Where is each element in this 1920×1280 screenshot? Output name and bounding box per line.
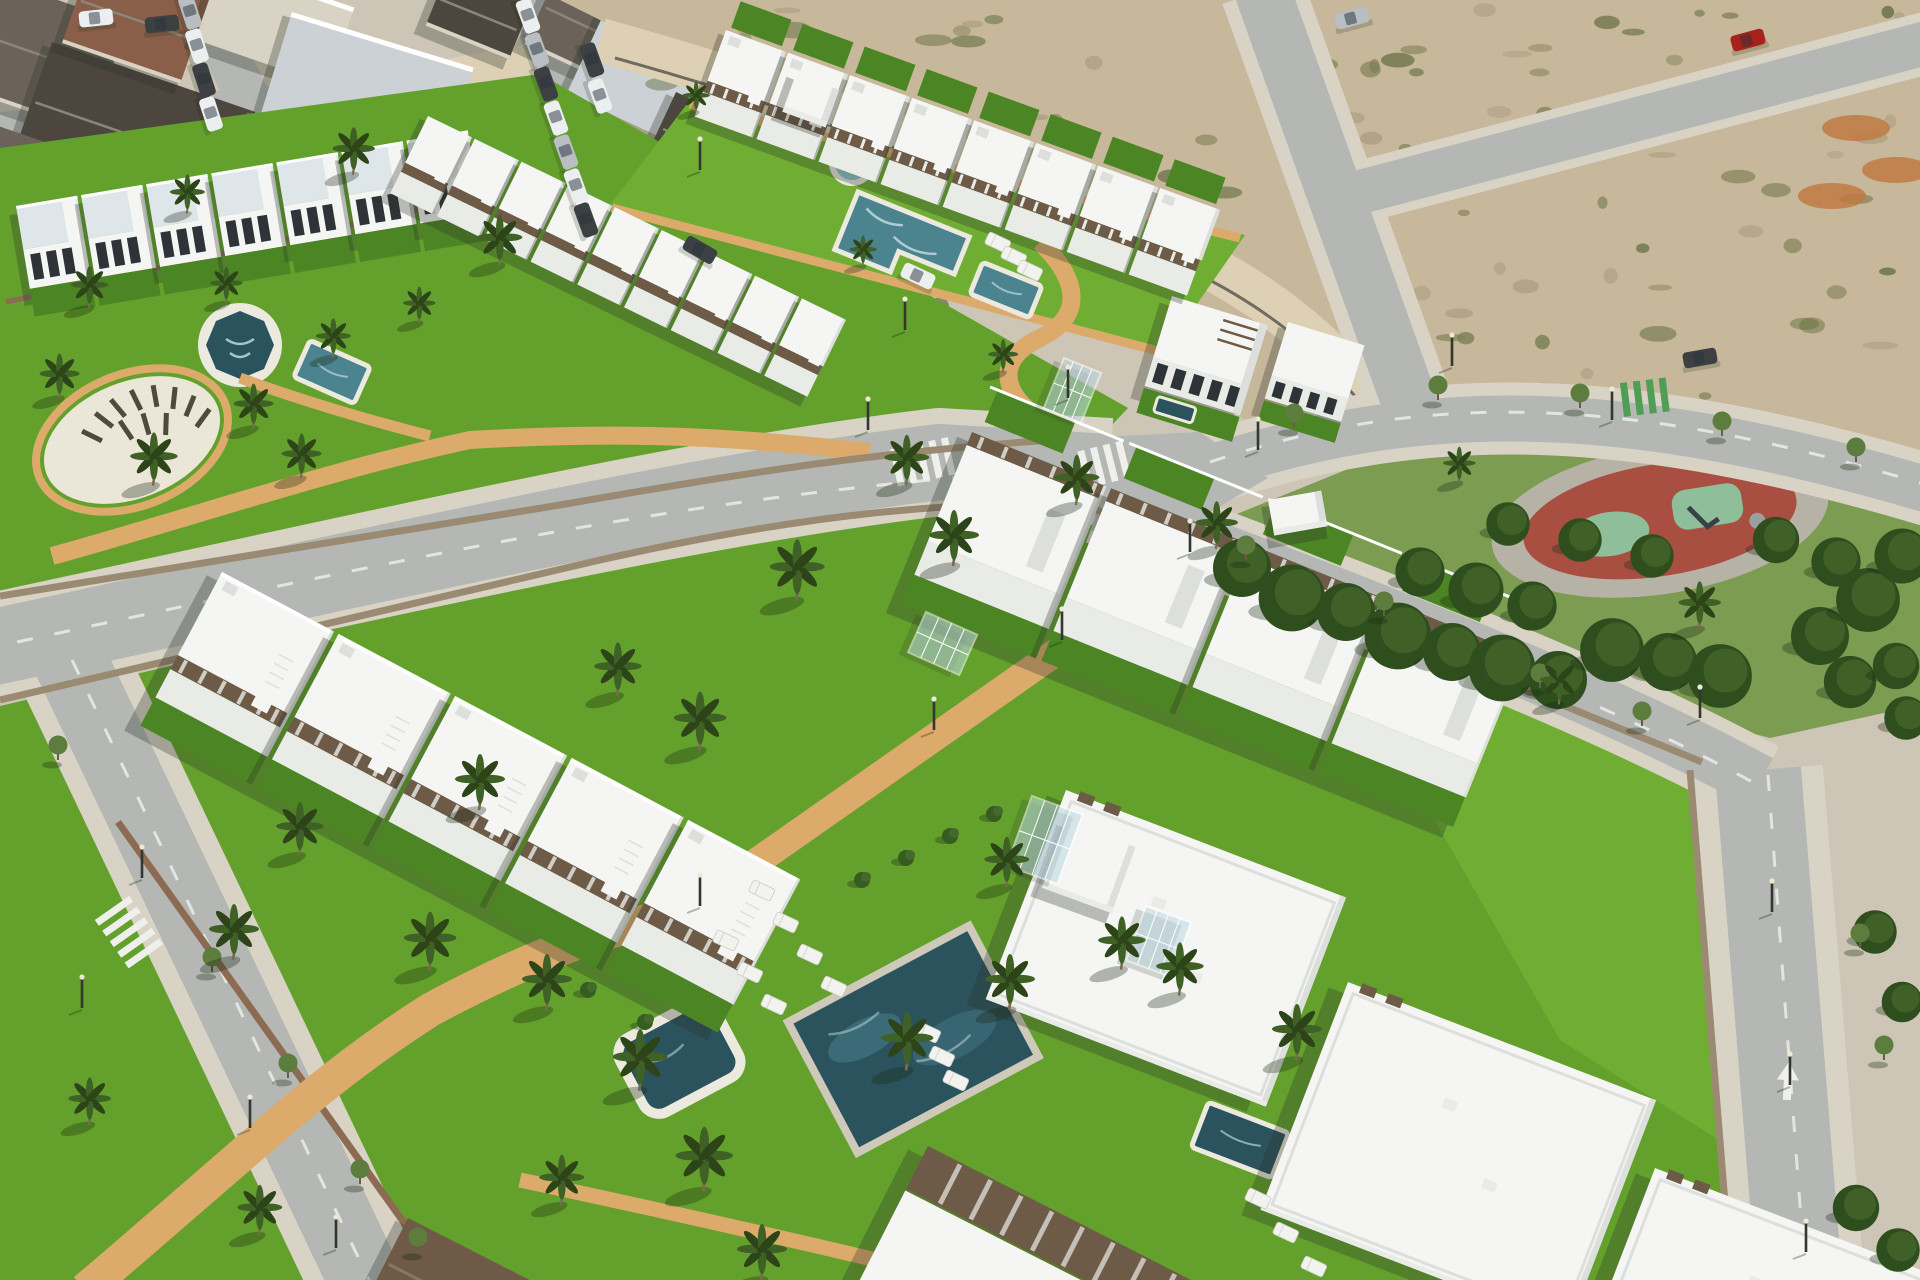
scene-svg: Aerial 3D render of a white townhouse re… — [0, 0, 1920, 1280]
scrub-patch — [1666, 55, 1683, 66]
scrub-patch — [915, 34, 952, 46]
scrub-patch — [1721, 170, 1755, 184]
scrub-patch — [1594, 16, 1620, 29]
scrub-patch — [1761, 183, 1791, 197]
scrub-patch — [773, 7, 800, 13]
earth-mound — [1822, 115, 1890, 141]
scrub-patch — [1528, 44, 1553, 52]
scrub-patch — [1473, 3, 1496, 17]
scrub-patch — [951, 35, 986, 47]
scrub-patch — [1409, 68, 1424, 76]
scrub-patch — [1694, 10, 1705, 17]
scrub-patch — [1722, 12, 1739, 18]
scrub-patch — [1636, 243, 1649, 253]
scrub-patch — [1827, 285, 1847, 299]
scrub-patch — [1458, 210, 1470, 216]
scrub-patch — [1503, 50, 1532, 57]
scrub-patch — [1862, 342, 1898, 350]
scrub-patch — [1598, 196, 1608, 208]
scrub-patch — [1879, 268, 1896, 276]
scrub-patch — [1639, 326, 1676, 342]
scrub-patch — [1487, 106, 1512, 118]
scrub-patch — [1649, 152, 1677, 158]
scrub-patch — [1085, 56, 1103, 70]
scrub-patch — [1648, 285, 1672, 291]
scrub-patch — [1494, 262, 1506, 275]
scrub-patch — [984, 15, 1003, 24]
parked-car — [142, 14, 182, 38]
scrub-patch — [1604, 268, 1618, 284]
aerial-render: Aerial 3D render of a white townhouse re… — [0, 0, 1920, 1280]
scrub-patch — [1581, 368, 1594, 379]
scrub-patch — [1445, 309, 1473, 319]
scrub-patch — [1790, 318, 1819, 330]
scrub-patch — [962, 20, 983, 27]
scrub-patch — [1513, 279, 1539, 293]
scrub-patch — [1535, 335, 1550, 350]
parked-car — [76, 8, 116, 32]
ground-lettering-mark — [163, 413, 169, 435]
road-east — [1758, 770, 1800, 1280]
earth-mound — [1798, 183, 1866, 209]
scrub-patch — [1827, 151, 1844, 159]
scrub-patch — [1881, 6, 1894, 19]
scrub-patch — [1529, 68, 1549, 76]
scrub-patch — [1622, 29, 1645, 36]
scrub-patch — [1369, 59, 1379, 73]
scrub-patch — [1360, 132, 1382, 145]
scrub-patch — [1381, 53, 1415, 68]
scrub-patch — [1195, 134, 1217, 145]
scrub-patch — [1784, 238, 1802, 253]
scrub-patch — [1699, 392, 1712, 400]
scrub-patch — [1400, 45, 1427, 54]
fountain — [198, 303, 282, 387]
scrub-patch — [1739, 225, 1764, 237]
